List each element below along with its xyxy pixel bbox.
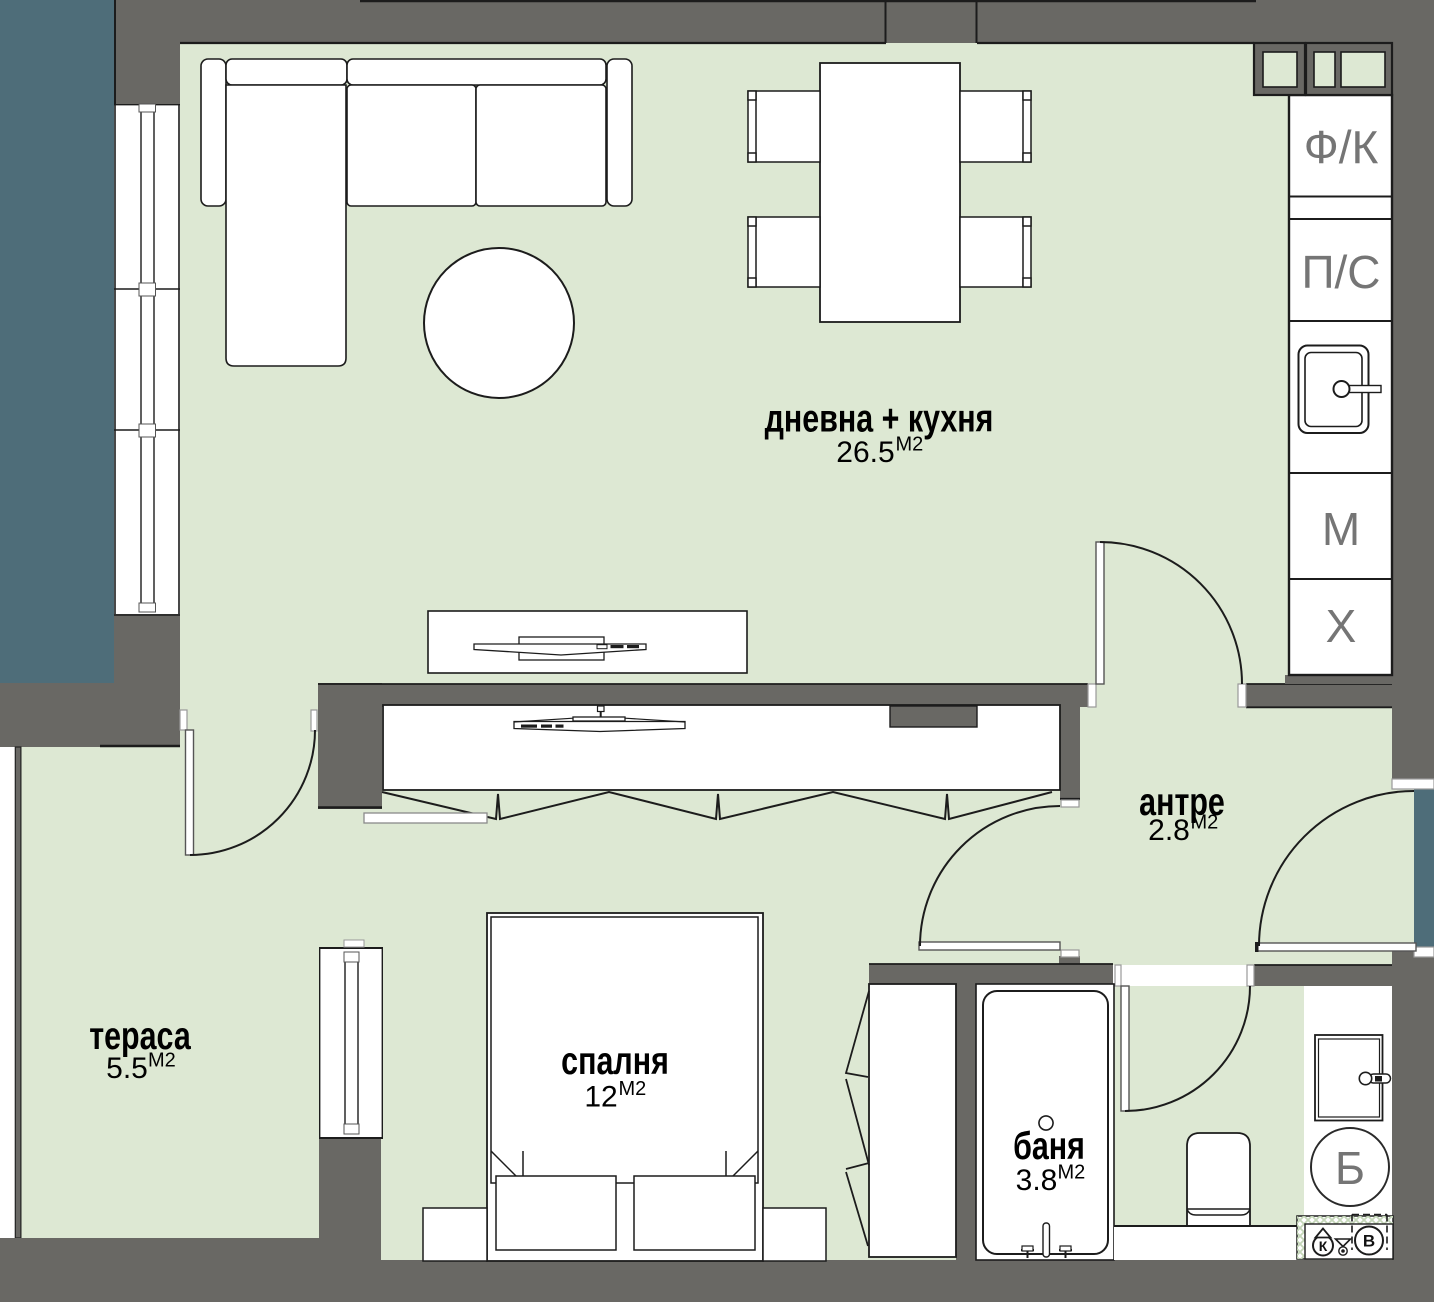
svg-text:В: В	[1363, 1232, 1375, 1251]
svg-text:12: 12	[584, 1081, 617, 1114]
svg-text:Б: Б	[1335, 1142, 1365, 1194]
svg-text:К: К	[1319, 1238, 1328, 1254]
svg-text:5.5: 5.5	[106, 1052, 148, 1085]
svg-text:М2: М2	[619, 1078, 647, 1100]
svg-text:П/С: П/С	[1301, 246, 1380, 298]
svg-text:М2: М2	[896, 434, 924, 456]
svg-text:26.5: 26.5	[836, 436, 894, 469]
svg-text:дневна + кухня: дневна + кухня	[765, 397, 994, 440]
svg-text:М2: М2	[148, 1050, 176, 1072]
svg-text:М2: М2	[1058, 1162, 1086, 1184]
svg-text:Ф/К: Ф/К	[1304, 121, 1379, 173]
svg-text:М2: М2	[1191, 812, 1219, 834]
svg-text:Х: Х	[1326, 600, 1357, 652]
svg-text:спалня: спалня	[561, 1039, 669, 1082]
svg-text:2.8: 2.8	[1148, 814, 1190, 847]
svg-text:3.8: 3.8	[1016, 1164, 1058, 1197]
svg-text:М: М	[1322, 503, 1360, 555]
